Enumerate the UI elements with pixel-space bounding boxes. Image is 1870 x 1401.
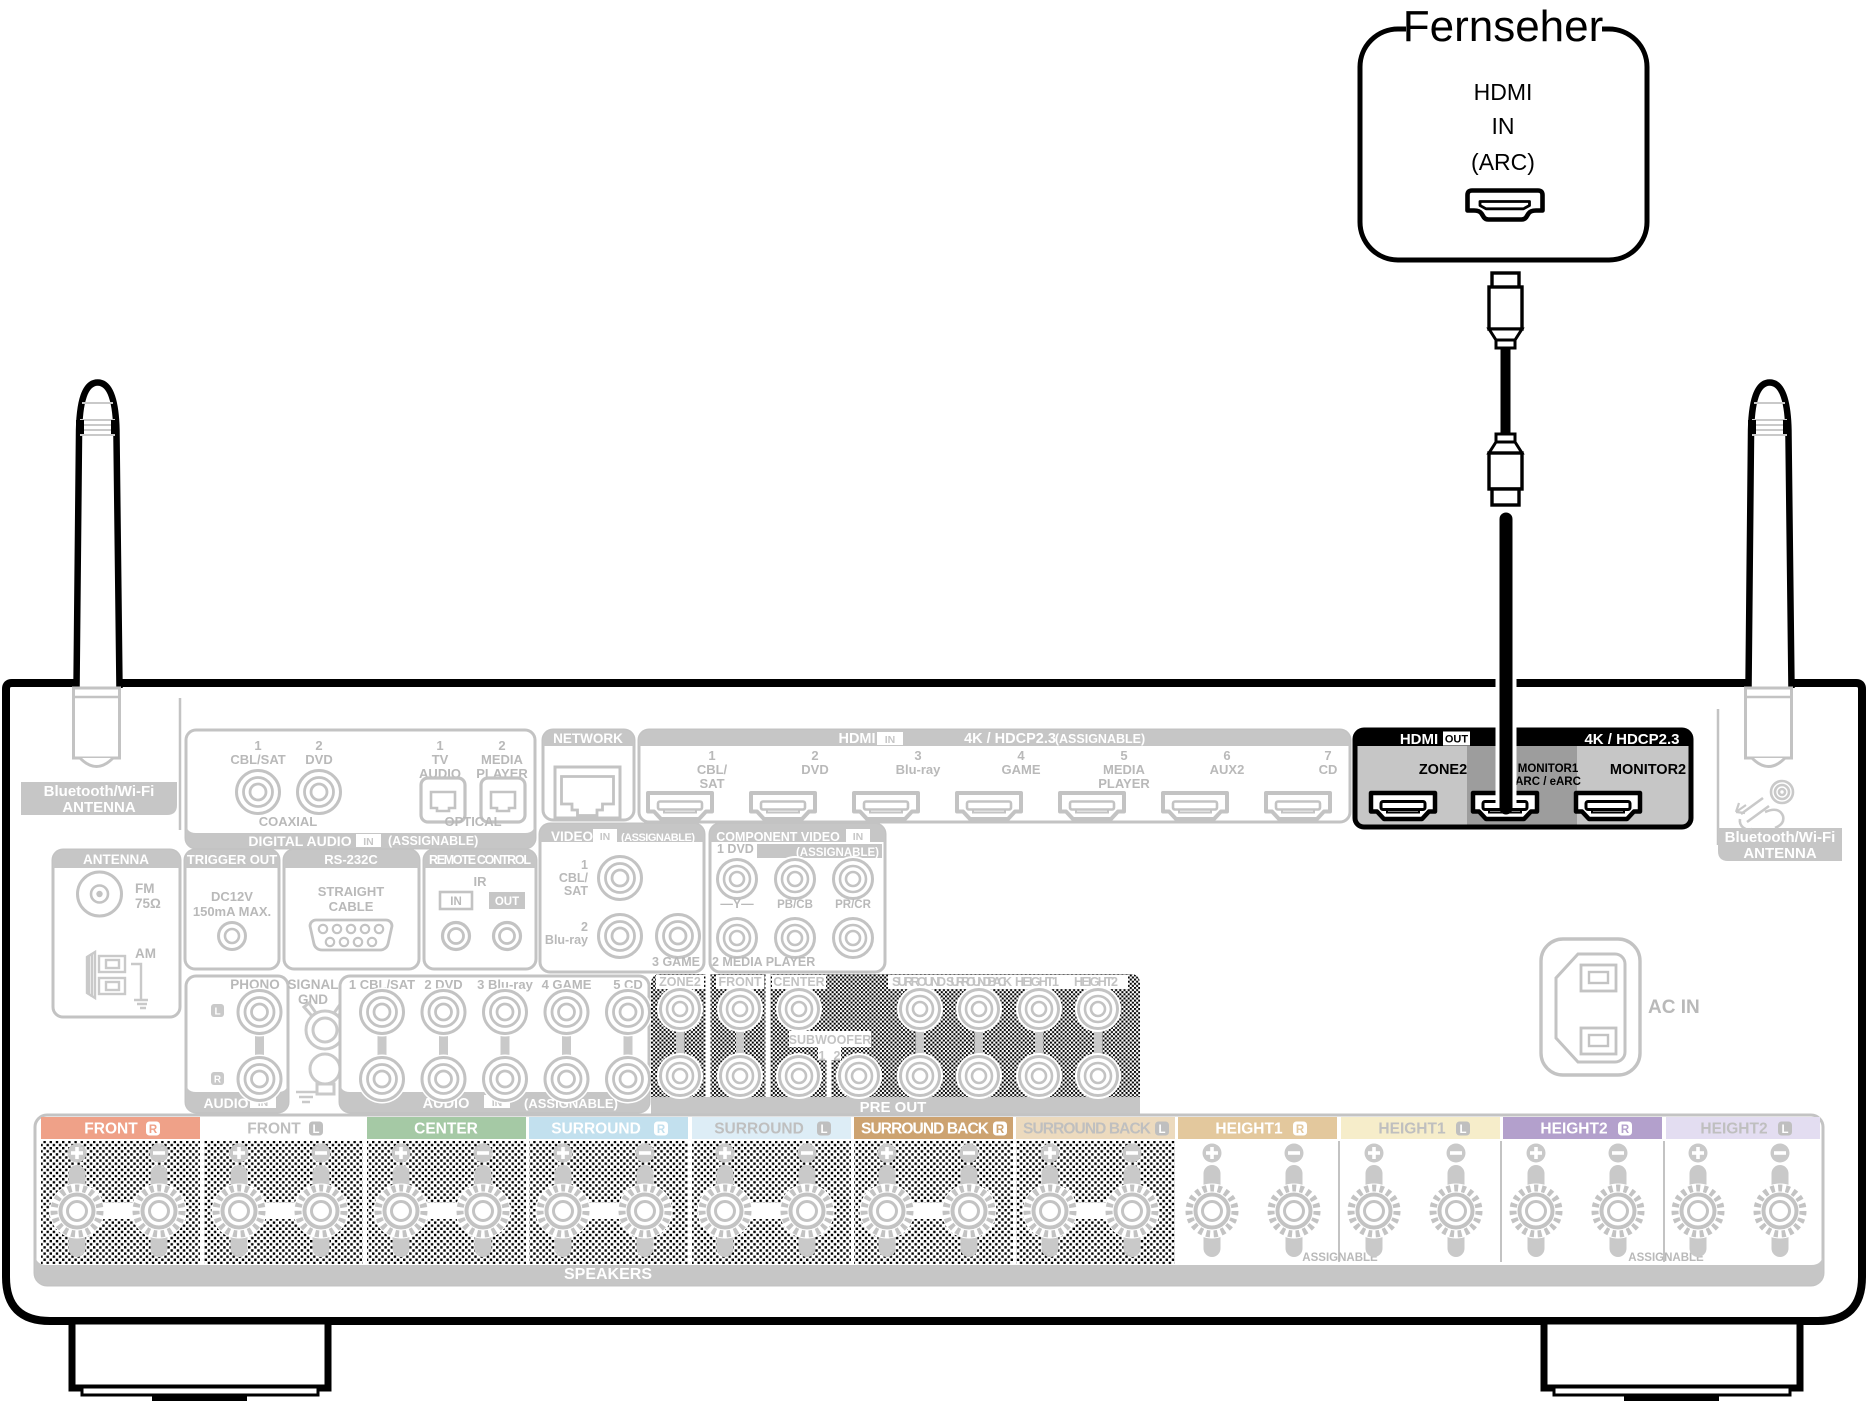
svg-text:PR/CR: PR/CR	[835, 899, 871, 911]
svg-text:R: R	[657, 1124, 666, 1136]
svg-text:PLAYER: PLAYER	[1098, 776, 1150, 791]
svg-text:(ASSIGNABLE): (ASSIGNABLE)	[796, 847, 879, 859]
svg-text:1: 1	[581, 858, 588, 872]
svg-text:75Ω: 75Ω	[135, 896, 161, 911]
svg-text:IN: IN	[600, 831, 611, 843]
svg-text:4K / HDCP2.3: 4K / HDCP2.3	[964, 731, 1056, 747]
svg-text:3 GAME: 3 GAME	[652, 955, 700, 969]
svg-text:2: 2	[811, 748, 818, 763]
svg-text:NETWORK: NETWORK	[553, 731, 623, 746]
svg-text:FRONT: FRONT	[247, 1121, 301, 1138]
svg-text:OUT: OUT	[1445, 734, 1469, 746]
svg-text:GAME: GAME	[1002, 762, 1041, 777]
svg-text:CABLE: CABLE	[329, 899, 374, 914]
svg-text:ANTENNA: ANTENNA	[83, 852, 149, 867]
svg-text:SURROUND BACK: SURROUND BACK	[861, 1121, 990, 1138]
svg-text:4K / HDCP2.3: 4K / HDCP2.3	[1584, 731, 1679, 748]
svg-text:L: L	[1459, 1124, 1466, 1136]
svg-text:—Y—: —Y—	[720, 897, 754, 911]
svg-text:SAT: SAT	[564, 884, 588, 898]
svg-text:DVD: DVD	[305, 752, 332, 767]
svg-text:3: 3	[914, 748, 921, 763]
svg-text:CBL/: CBL/	[559, 871, 589, 885]
svg-text:AUDIO: AUDIO	[203, 1095, 248, 1111]
svg-text:ZONE2: ZONE2	[1419, 762, 1467, 778]
svg-text:AUX2: AUX2	[1210, 762, 1245, 777]
svg-text:AM: AM	[135, 946, 156, 961]
svg-text:R: R	[1621, 1124, 1630, 1136]
svg-text:IR: IR	[474, 874, 488, 889]
svg-text:REMOTE CONTROL: REMOTE CONTROL	[429, 853, 531, 867]
svg-text:ANTENNA: ANTENNA	[62, 799, 135, 816]
svg-text:SURROUND BACK: SURROUND BACK	[1023, 1121, 1152, 1138]
svg-text:R: R	[1296, 1124, 1305, 1136]
svg-text:FRONT: FRONT	[84, 1121, 138, 1138]
svg-text:Bluetooth/Wi-Fi: Bluetooth/Wi-Fi	[1725, 829, 1836, 846]
svg-text:RS-232C: RS-232C	[324, 852, 378, 867]
svg-text:L: L	[1158, 1124, 1165, 1136]
svg-text:CBL/SAT: CBL/SAT	[230, 752, 285, 767]
svg-text:(ARC): (ARC)	[1471, 149, 1535, 175]
svg-text:4: 4	[1017, 748, 1025, 763]
svg-text:HEIGHT1: HEIGHT1	[1378, 1121, 1446, 1138]
svg-text:DC12V: DC12V	[211, 889, 253, 904]
svg-text:6: 6	[1223, 748, 1230, 763]
svg-text:1 DVD: 1 DVD	[717, 842, 754, 856]
svg-text:GND: GND	[298, 992, 328, 1007]
svg-text:2: 2	[581, 920, 588, 934]
svg-text:OUT: OUT	[495, 896, 519, 908]
svg-text:SURROUND: SURROUND	[551, 1121, 641, 1138]
svg-text:2: 2	[315, 738, 322, 753]
svg-text:SURROUND: SURROUND	[714, 1121, 804, 1138]
svg-text:ARC / eARC: ARC / eARC	[1515, 776, 1581, 788]
svg-text:2: 2	[834, 1049, 841, 1063]
svg-text:CENTER: CENTER	[414, 1121, 478, 1138]
svg-text:PRE OUT: PRE OUT	[860, 1099, 927, 1116]
svg-text:IN: IN	[450, 896, 462, 908]
svg-text:CD: CD	[1319, 762, 1338, 777]
svg-text:HDMI: HDMI	[838, 731, 875, 747]
svg-text:HEIGHT2: HEIGHT2	[1540, 1121, 1607, 1138]
svg-text:Blu-ray: Blu-ray	[545, 933, 588, 947]
svg-text:L: L	[312, 1124, 319, 1136]
svg-text:FM: FM	[135, 881, 155, 896]
svg-text:Blu-ray: Blu-ray	[896, 762, 942, 777]
svg-text:COAXIAL: COAXIAL	[259, 814, 318, 829]
svg-text:150mA MAX.: 150mA MAX.	[193, 904, 271, 919]
svg-text:IN: IN	[885, 734, 896, 746]
svg-text:(ASSIGNABLE): (ASSIGNABLE)	[1055, 732, 1145, 746]
svg-text:R: R	[214, 1075, 222, 1086]
svg-text:TV: TV	[432, 752, 449, 767]
svg-text:SAT: SAT	[699, 776, 724, 791]
svg-text:CBL/: CBL/	[697, 762, 728, 777]
svg-text:ASSIGNABLE: ASSIGNABLE	[1302, 1252, 1378, 1264]
svg-text:MONITOR2: MONITOR2	[1610, 762, 1686, 778]
svg-text:1: 1	[708, 748, 715, 763]
svg-text:R: R	[149, 1124, 158, 1136]
svg-text:(ASSIGNABLE): (ASSIGNABLE)	[621, 832, 695, 844]
svg-text:L: L	[1781, 1124, 1788, 1136]
svg-text:SUBWOOFER: SUBWOOFER	[789, 1033, 872, 1047]
svg-text:DVD: DVD	[801, 762, 828, 777]
svg-text:Bluetooth/Wi-Fi: Bluetooth/Wi-Fi	[44, 783, 155, 800]
svg-text:2: 2	[498, 738, 505, 753]
svg-text:IN: IN	[1492, 113, 1515, 139]
svg-text:IN: IN	[853, 831, 864, 843]
svg-text:(ASSIGNABLE): (ASSIGNABLE)	[388, 834, 478, 848]
svg-text:L: L	[214, 1007, 220, 1018]
svg-text:SPEAKERS: SPEAKERS	[564, 1266, 652, 1283]
svg-text:MEDIA: MEDIA	[481, 752, 524, 767]
svg-text:HEIGHT2: HEIGHT2	[1700, 1121, 1767, 1138]
svg-text:VIDEO: VIDEO	[551, 829, 593, 844]
svg-text:IN: IN	[363, 836, 374, 848]
svg-text:HEIGHT1: HEIGHT1	[1215, 1121, 1283, 1138]
svg-text:MEDIA: MEDIA	[1103, 762, 1146, 777]
svg-text:PB/CB: PB/CB	[777, 899, 813, 911]
svg-text:1: 1	[819, 1049, 826, 1063]
svg-text:R: R	[996, 1124, 1005, 1136]
svg-text:AC IN: AC IN	[1648, 997, 1700, 1018]
svg-text:OPTICAL: OPTICAL	[444, 814, 501, 829]
svg-text:TRIGGER OUT: TRIGGER OUT	[187, 852, 277, 867]
svg-text:1: 1	[436, 738, 443, 753]
svg-text:SIGNAL: SIGNAL	[287, 977, 338, 992]
svg-text:ANTENNA: ANTENNA	[1743, 845, 1816, 862]
svg-text:Fernseher: Fernseher	[1403, 2, 1604, 51]
svg-text:5: 5	[1120, 748, 1127, 763]
svg-text:L: L	[820, 1124, 827, 1136]
svg-text:DIGITAL AUDIO: DIGITAL AUDIO	[248, 833, 351, 849]
svg-text:MONITOR1: MONITOR1	[1518, 763, 1579, 775]
svg-text:HDMI: HDMI	[1474, 79, 1533, 105]
svg-text:2 MEDIA PLAYER: 2 MEDIA PLAYER	[712, 955, 815, 969]
svg-text:STRAIGHT: STRAIGHT	[318, 884, 385, 899]
svg-text:7: 7	[1324, 748, 1331, 763]
svg-text:1: 1	[254, 738, 261, 753]
svg-text:HDMI: HDMI	[1400, 731, 1438, 748]
